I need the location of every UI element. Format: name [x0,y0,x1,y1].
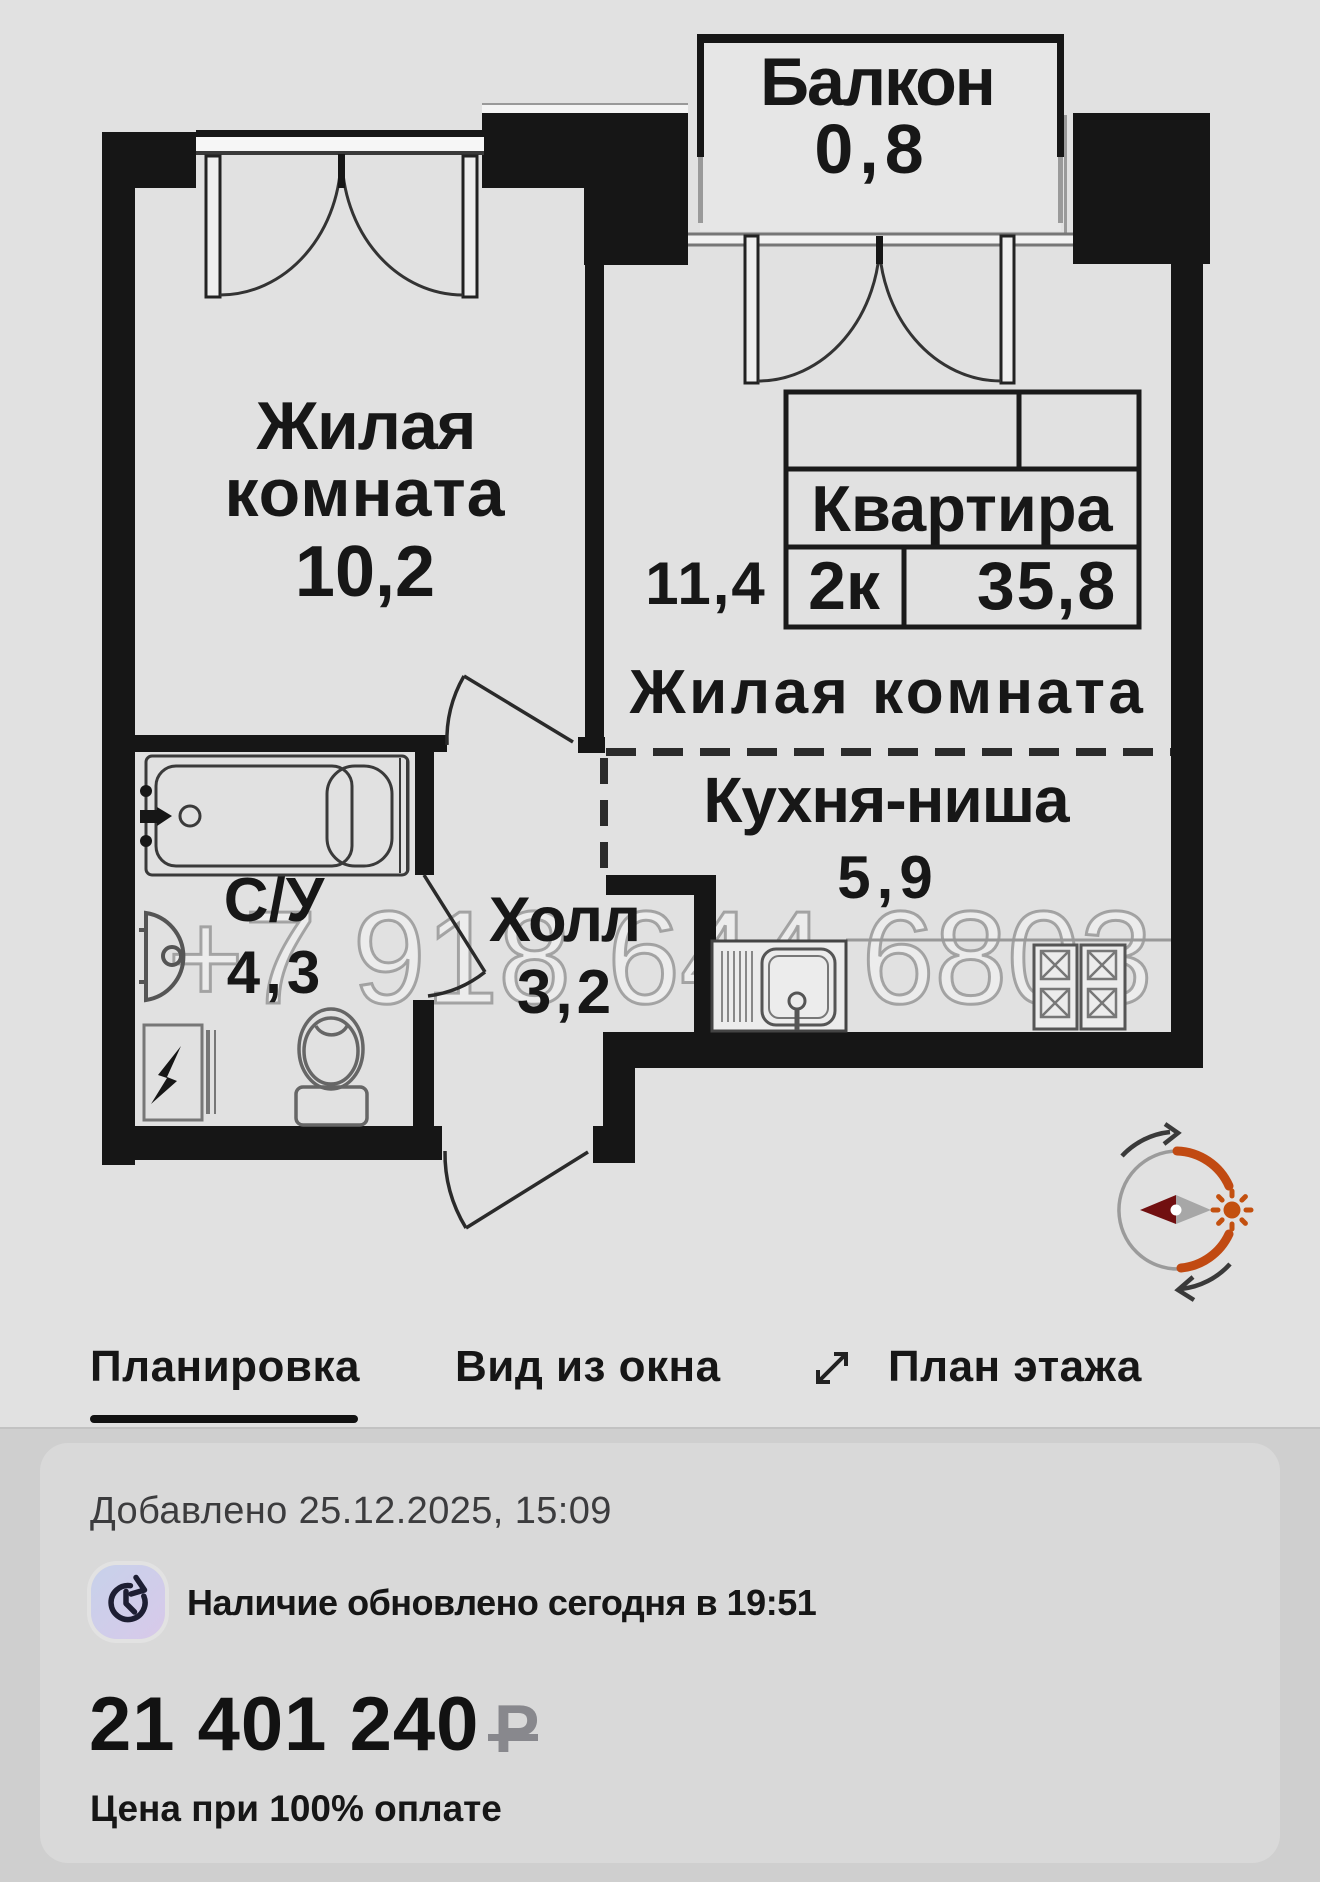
svg-text:10,2: 10,2 [295,532,435,612]
svg-text:4,3: 4,3 [227,939,325,1006]
svg-text:3,2: 3,2 [517,958,615,1027]
svg-text:35,8: 35,8 [977,548,1117,624]
svg-text:Балкон: Балкон [760,44,994,120]
svg-text:Жилая: Жилая [256,388,476,464]
svg-text:Жилая комната: Жилая комната [629,658,1147,727]
svg-text:Квартира: Квартира [811,472,1113,545]
svg-text:11,4: 11,4 [645,550,766,617]
svg-text:0,8: 0,8 [814,110,929,188]
svg-text:2к: 2к [808,548,881,624]
svg-text:Кухня-ниша: Кухня-ниша [703,764,1070,836]
svg-text:Холл: Холл [489,885,639,955]
svg-text:комната: комната [224,455,505,531]
svg-text:5,9: 5,9 [837,844,938,911]
